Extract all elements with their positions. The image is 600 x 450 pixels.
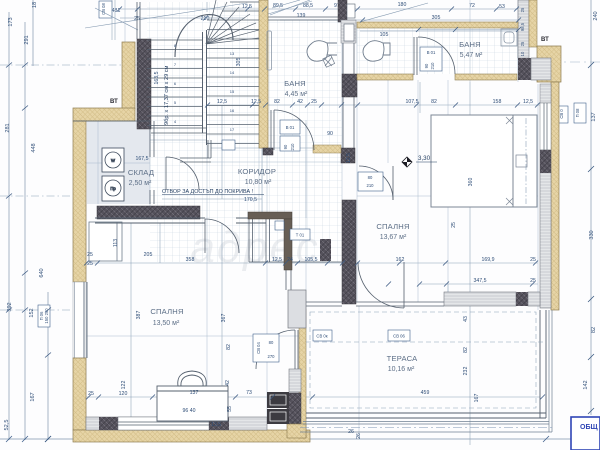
svg-text:42: 42	[297, 99, 303, 105]
svg-text:105: 105	[380, 32, 389, 38]
svg-text:БАНЯ: БАНЯ	[284, 79, 306, 88]
svg-text:205: 205	[144, 252, 153, 258]
svg-text:82: 82	[226, 344, 232, 350]
svg-text:167: 167	[30, 392, 36, 401]
svg-text:25: 25	[530, 257, 536, 263]
svg-text:137: 137	[190, 390, 199, 396]
svg-text:15: 15	[230, 89, 235, 94]
svg-text:25: 25	[87, 252, 93, 258]
svg-text:387: 387	[136, 311, 142, 320]
svg-text:358: 358	[186, 257, 195, 263]
svg-text:240: 240	[593, 11, 599, 20]
svg-text:137: 137	[591, 112, 597, 121]
svg-text:52,5: 52,5	[4, 420, 10, 431]
svg-text:3,30: 3,30	[418, 155, 431, 162]
svg-text:82: 82	[591, 327, 597, 333]
svg-text:105,5: 105,5	[305, 257, 318, 263]
svg-text:152: 152	[29, 308, 35, 317]
svg-text:16: 16	[230, 108, 235, 113]
svg-text:169,9: 169,9	[482, 257, 495, 263]
svg-text:96 40: 96 40	[183, 408, 196, 414]
svg-text:88,5: 88,5	[303, 3, 313, 9]
svg-text:12,5: 12,5	[272, 257, 282, 263]
svg-text:БАНЯ: БАНЯ	[459, 40, 481, 49]
svg-text:360: 360	[468, 178, 474, 187]
svg-text:W: W	[111, 158, 115, 163]
svg-text:26: 26	[348, 429, 354, 435]
svg-text:13,50 м²: 13,50 м²	[153, 320, 180, 327]
svg-text:КОРИДОР: КОРИДОР	[238, 167, 276, 176]
svg-text:18: 18	[32, 2, 38, 8]
svg-text:СВ 0к: СВ 0к	[316, 334, 327, 339]
svg-text:210: 210	[430, 62, 435, 70]
svg-text:ВТ: ВТ	[541, 37, 549, 43]
svg-text:43: 43	[463, 316, 469, 322]
svg-text:142: 142	[583, 380, 589, 389]
svg-text:12,5: 12,5	[217, 99, 227, 105]
svg-text:448: 448	[31, 143, 37, 152]
svg-text:СВ 06: СВ 06	[393, 334, 405, 339]
svg-text:СВ 0: СВ 0	[559, 109, 564, 119]
svg-text:ОБЩ: ОБЩ	[580, 424, 598, 431]
svg-text:42: 42	[225, 380, 231, 386]
svg-text:Пр: Пр	[110, 186, 116, 191]
svg-text:14: 14	[230, 70, 235, 75]
svg-text:ОТВОР ЗА ДОСТЪП ДО ПОКРИВА !: ОТВОР ЗА ДОСТЪП ДО ПОКРИВА !	[162, 189, 254, 195]
svg-text:113: 113	[113, 239, 119, 247]
svg-text:25: 25	[451, 222, 457, 228]
svg-text:120: 120	[119, 391, 128, 397]
svg-text:П 08: П 08	[575, 108, 580, 118]
svg-text:82: 82	[431, 99, 437, 105]
svg-text:55: 55	[227, 406, 233, 412]
svg-text:392: 392	[7, 302, 13, 311]
svg-text:12,5: 12,5	[523, 99, 533, 105]
svg-text:17: 17	[230, 127, 235, 132]
svg-text:10: 10	[520, 51, 525, 56]
svg-text:163,5: 163,5	[154, 71, 160, 84]
svg-text:В 01: В 01	[427, 50, 436, 55]
svg-text:367: 367	[221, 314, 227, 323]
svg-text:25: 25	[520, 41, 525, 46]
svg-text:232: 232	[463, 367, 469, 376]
svg-text:281: 281	[5, 123, 11, 132]
svg-text:В 01: В 01	[286, 125, 295, 130]
svg-text:13: 13	[230, 51, 235, 56]
svg-text:180: 180	[398, 2, 407, 8]
svg-text:82: 82	[463, 347, 469, 353]
svg-text:82: 82	[274, 99, 280, 105]
svg-text:СПАЛНЯ: СПАЛНЯ	[376, 222, 409, 231]
svg-text:12,5: 12,5	[346, 153, 352, 163]
svg-text:СПАЛНЯ: СПАЛНЯ	[150, 307, 183, 316]
svg-text:158: 158	[493, 99, 502, 105]
svg-text:98,5: 98,5	[520, 22, 525, 31]
svg-text:139: 139	[297, 13, 306, 19]
svg-text:210: 210	[367, 183, 375, 188]
svg-text:80: 80	[368, 175, 373, 180]
svg-text:4,45 м²: 4,45 м²	[285, 91, 308, 98]
svg-text:10,16 м²: 10,16 м²	[388, 366, 415, 373]
svg-text:Т 01: Т 01	[296, 233, 305, 238]
svg-text:25: 25	[311, 99, 317, 105]
svg-text:347,5: 347,5	[474, 278, 487, 284]
svg-text:13,5: 13,5	[211, 422, 221, 428]
svg-text:170,5: 170,5	[244, 197, 257, 203]
svg-text:122: 122	[121, 381, 127, 390]
svg-text:26: 26	[356, 433, 362, 439]
svg-text:9бр. х 17,37 см х 29 см: 9бр. х 17,37 см х 29 см	[164, 65, 170, 125]
svg-text:305: 305	[236, 58, 242, 67]
svg-text:270: 270	[268, 354, 276, 359]
svg-text:24: 24	[287, 257, 293, 263]
svg-text:5,47 м²: 5,47 м²	[460, 52, 483, 59]
svg-text:173: 173	[8, 17, 14, 26]
svg-text:291: 291	[24, 35, 30, 44]
svg-text:80: 80	[269, 340, 274, 345]
svg-text:ТЕРАСА: ТЕРАСА	[387, 354, 418, 363]
svg-text:330: 330	[589, 230, 595, 239]
svg-text:СКЛАД: СКЛАД	[128, 168, 154, 177]
svg-text:167: 167	[474, 394, 480, 403]
svg-text:90: 90	[327, 131, 333, 137]
svg-text:13,67 м²: 13,67 м²	[380, 234, 407, 241]
svg-text:25: 25	[520, 7, 525, 12]
svg-text:210: 210	[290, 143, 295, 151]
svg-text:СВ 04: СВ 04	[256, 342, 261, 354]
svg-text:10,80 м²: 10,80 м²	[245, 179, 272, 186]
svg-text:ВТ: ВТ	[110, 99, 118, 105]
svg-text:2,50 м²: 2,50 м²	[129, 180, 152, 187]
svg-text:459: 459	[421, 390, 430, 396]
svg-text:167,5: 167,5	[136, 156, 149, 162]
svg-text:640: 640	[39, 268, 45, 277]
svg-text:12,5: 12,5	[251, 99, 261, 105]
svg-text:73: 73	[246, 390, 252, 396]
svg-text:90: 90	[283, 144, 288, 149]
svg-text:107,5: 107,5	[406, 99, 419, 105]
svg-text:90: 90	[424, 63, 429, 68]
